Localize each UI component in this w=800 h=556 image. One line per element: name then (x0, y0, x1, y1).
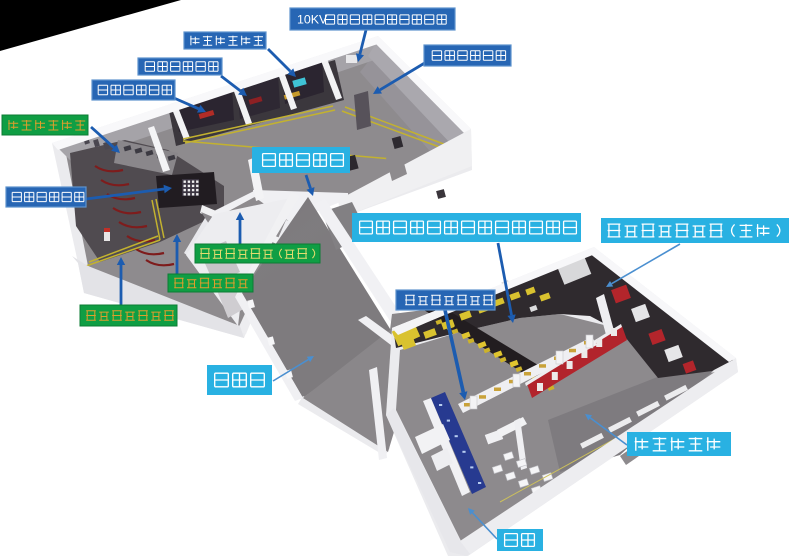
svg-text:10KV: 10KV (297, 13, 328, 27)
